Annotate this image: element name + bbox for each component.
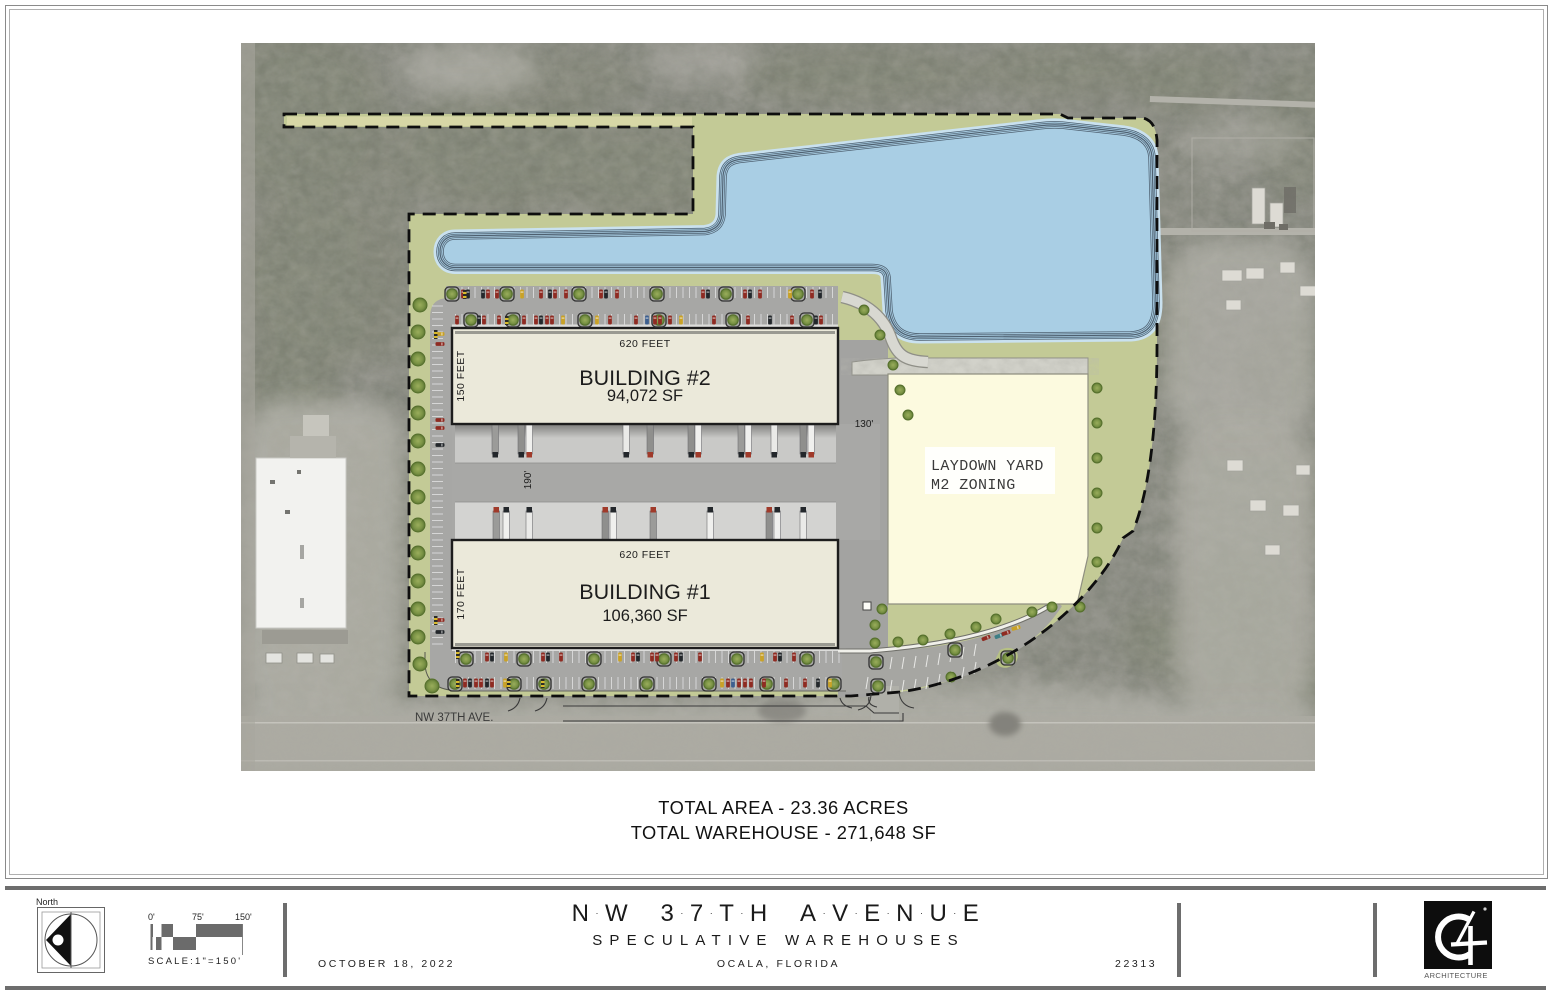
svg-text:130': 130' bbox=[855, 419, 874, 430]
svg-text:106,360 SF: 106,360 SF bbox=[602, 607, 687, 625]
svg-text:620 FEET: 620 FEET bbox=[619, 338, 670, 350]
svg-text:LAYDOWN YARD: LAYDOWN YARD bbox=[931, 458, 1044, 475]
svg-text:190': 190' bbox=[523, 471, 534, 490]
svg-text:NW 37TH AVE.: NW 37TH AVE. bbox=[415, 712, 493, 724]
svg-text:BUILDING #1: BUILDING #1 bbox=[579, 580, 710, 604]
svg-text:150 FEET: 150 FEET bbox=[455, 350, 467, 401]
svg-text:M2 ZONING: M2 ZONING bbox=[931, 477, 1016, 494]
svg-text:620 FEET: 620 FEET bbox=[619, 549, 670, 561]
svg-text:170 FEET: 170 FEET bbox=[455, 568, 467, 619]
svg-text:94,072 SF: 94,072 SF bbox=[607, 387, 683, 405]
